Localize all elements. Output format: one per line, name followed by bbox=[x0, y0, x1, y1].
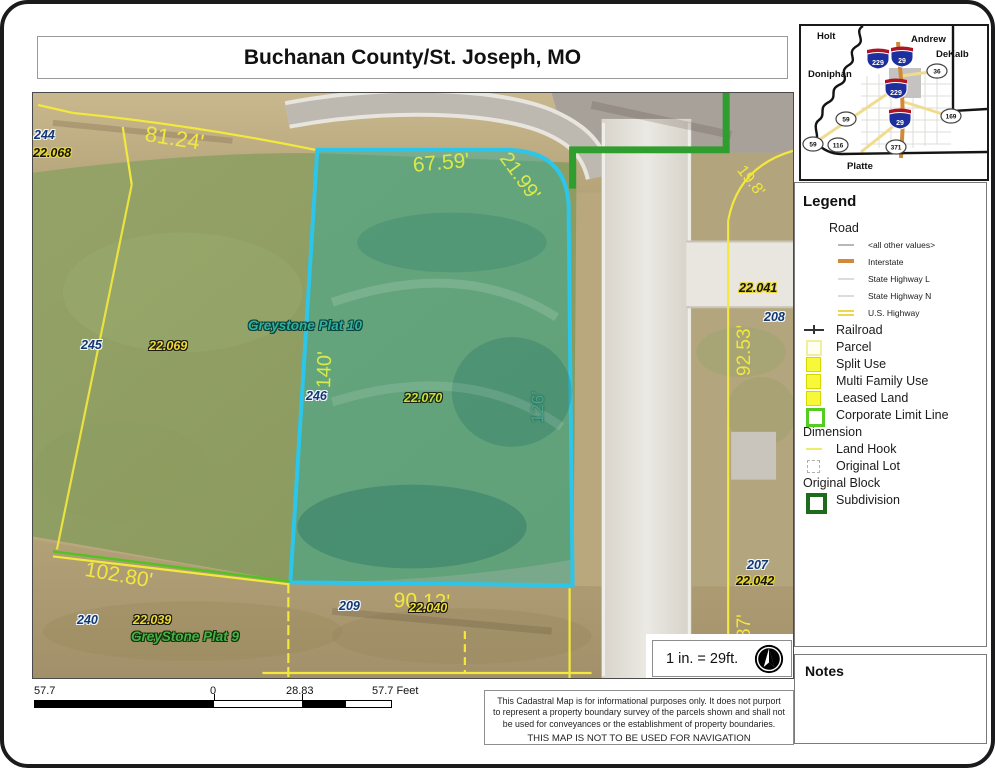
legend-item-label: Subdivision bbox=[836, 493, 900, 507]
line-state-symbol bbox=[835, 288, 857, 303]
legend-item-label: Leased Land bbox=[836, 391, 908, 405]
disclaimer-nav-warning: THIS MAP IS NOT TO BE USED FOR NAVIGATIO… bbox=[493, 733, 785, 744]
legend-panel: Legend Road<all other values>InterstateS… bbox=[794, 182, 987, 647]
legend-item: Original Block bbox=[801, 474, 980, 491]
scalebar-graphic bbox=[34, 700, 392, 708]
legend-item-label: State Highway N bbox=[868, 291, 931, 301]
legend-item-label: <all other values> bbox=[868, 240, 935, 250]
line-state-symbol bbox=[835, 271, 857, 286]
railroad-symbol bbox=[803, 322, 825, 337]
legend-item: Dimension bbox=[801, 423, 980, 440]
legend-item-label: Interstate bbox=[868, 257, 903, 267]
legend-item-label: Split Use bbox=[836, 357, 886, 371]
scale-bar: 57.7 0 28.83 57.7 Feet bbox=[34, 685, 474, 715]
legend-item-label: Land Hook bbox=[836, 442, 896, 456]
notes-panel: Notes bbox=[794, 654, 987, 744]
svg-text:29: 29 bbox=[898, 58, 906, 65]
legend-item-label: Multi Family Use bbox=[836, 374, 928, 388]
subdivision-symbol bbox=[803, 492, 825, 507]
svg-text:229: 229 bbox=[872, 60, 884, 67]
legend-item: Original Lot bbox=[801, 457, 980, 474]
notes-title: Notes bbox=[805, 663, 976, 679]
legend-item: Railroad bbox=[801, 321, 980, 338]
svg-text:59: 59 bbox=[809, 142, 817, 149]
scale-note-text: 1 in. = 29ft. bbox=[666, 651, 738, 667]
legend-item-label: Corporate Limit Line bbox=[836, 408, 949, 422]
legend-item: Road bbox=[801, 219, 980, 236]
corporate-limit-symbol bbox=[803, 407, 825, 422]
north-arrow-icon bbox=[754, 644, 784, 674]
land-hook-symbol bbox=[803, 441, 825, 456]
svg-text:Doniphan: Doniphan bbox=[808, 69, 852, 80]
inset-map-graphic: 229 29 229 29 bbox=[801, 26, 987, 179]
svg-text:169: 169 bbox=[946, 114, 957, 121]
svg-text:Holt: Holt bbox=[817, 31, 836, 42]
legend-items: Road<all other values>InterstateState Hi… bbox=[801, 219, 980, 508]
svg-text:Andrew: Andrew bbox=[911, 34, 946, 45]
legend-item-label: State Highway L bbox=[868, 274, 930, 284]
cadastral-map-page: Buchanan County/St. Joseph, MO bbox=[0, 0, 995, 768]
svg-text:29: 29 bbox=[896, 120, 904, 127]
scalebar-label-mid: 28.83 bbox=[286, 685, 314, 697]
line-interstate-symbol bbox=[835, 254, 857, 269]
page-title: Buchanan County/St. Joseph, MO bbox=[244, 46, 581, 70]
parcel-symbol bbox=[803, 339, 825, 354]
multi-family-symbol bbox=[803, 373, 825, 388]
svg-text:Platte: Platte bbox=[847, 161, 873, 172]
legend-item: Parcel bbox=[801, 338, 980, 355]
legend-item: Multi Family Use bbox=[801, 372, 980, 389]
legend-item: Interstate bbox=[801, 253, 980, 270]
disclaimer-box: This Cadastral Map is for informational … bbox=[484, 690, 794, 745]
line-us-symbol bbox=[835, 305, 857, 320]
parcel-highlight[interactable] bbox=[290, 150, 572, 586]
svg-text:229: 229 bbox=[890, 90, 902, 97]
legend-item: State Highway L bbox=[801, 270, 980, 287]
legend-item: Subdivision bbox=[801, 491, 980, 508]
scalebar-label-right: 57.7 Feet bbox=[372, 685, 418, 697]
map-title-bar: Buchanan County/St. Joseph, MO bbox=[37, 36, 788, 79]
legend-item: U.S. Highway bbox=[801, 304, 980, 321]
scalebar-label-left: 57.7 bbox=[34, 685, 55, 697]
legend-item: Corporate Limit Line bbox=[801, 406, 980, 423]
aerial-imagery bbox=[33, 93, 793, 678]
svg-text:DeKalb: DeKalb bbox=[936, 49, 969, 60]
legend-item: <all other values> bbox=[801, 236, 980, 253]
original-lot-symbol bbox=[803, 458, 825, 473]
disclaimer-text: This Cadastral Map is for informational … bbox=[493, 696, 785, 730]
legend-item: Land Hook bbox=[801, 440, 980, 457]
legend-title: Legend bbox=[803, 193, 980, 210]
legend-item-label: Parcel bbox=[836, 340, 871, 354]
scale-note-box: 1 in. = 29ft. bbox=[652, 640, 792, 677]
leased-land-symbol bbox=[803, 390, 825, 405]
map-canvas[interactable]: 24422.06881.24'67.59'21.99'19.8'Greyston… bbox=[32, 92, 794, 679]
line-gray-symbol bbox=[835, 237, 857, 252]
legend-item: Leased Land bbox=[801, 389, 980, 406]
svg-text:59: 59 bbox=[842, 117, 850, 124]
legend-item-label: Railroad bbox=[836, 323, 883, 337]
legend-item: State Highway N bbox=[801, 287, 980, 304]
legend-item-label: Original Block bbox=[803, 476, 880, 490]
legend-item-label: U.S. Highway bbox=[868, 308, 920, 318]
svg-text:116: 116 bbox=[833, 143, 844, 150]
legend-item-label: Original Lot bbox=[836, 459, 900, 473]
overview-inset-map[interactable]: 229 29 229 29 bbox=[799, 24, 989, 181]
legend-item: Split Use bbox=[801, 355, 980, 372]
svg-text:371: 371 bbox=[891, 145, 902, 152]
legend-item-label: Road bbox=[829, 221, 859, 235]
svg-text:36: 36 bbox=[933, 69, 941, 76]
split-use-symbol bbox=[803, 356, 825, 371]
